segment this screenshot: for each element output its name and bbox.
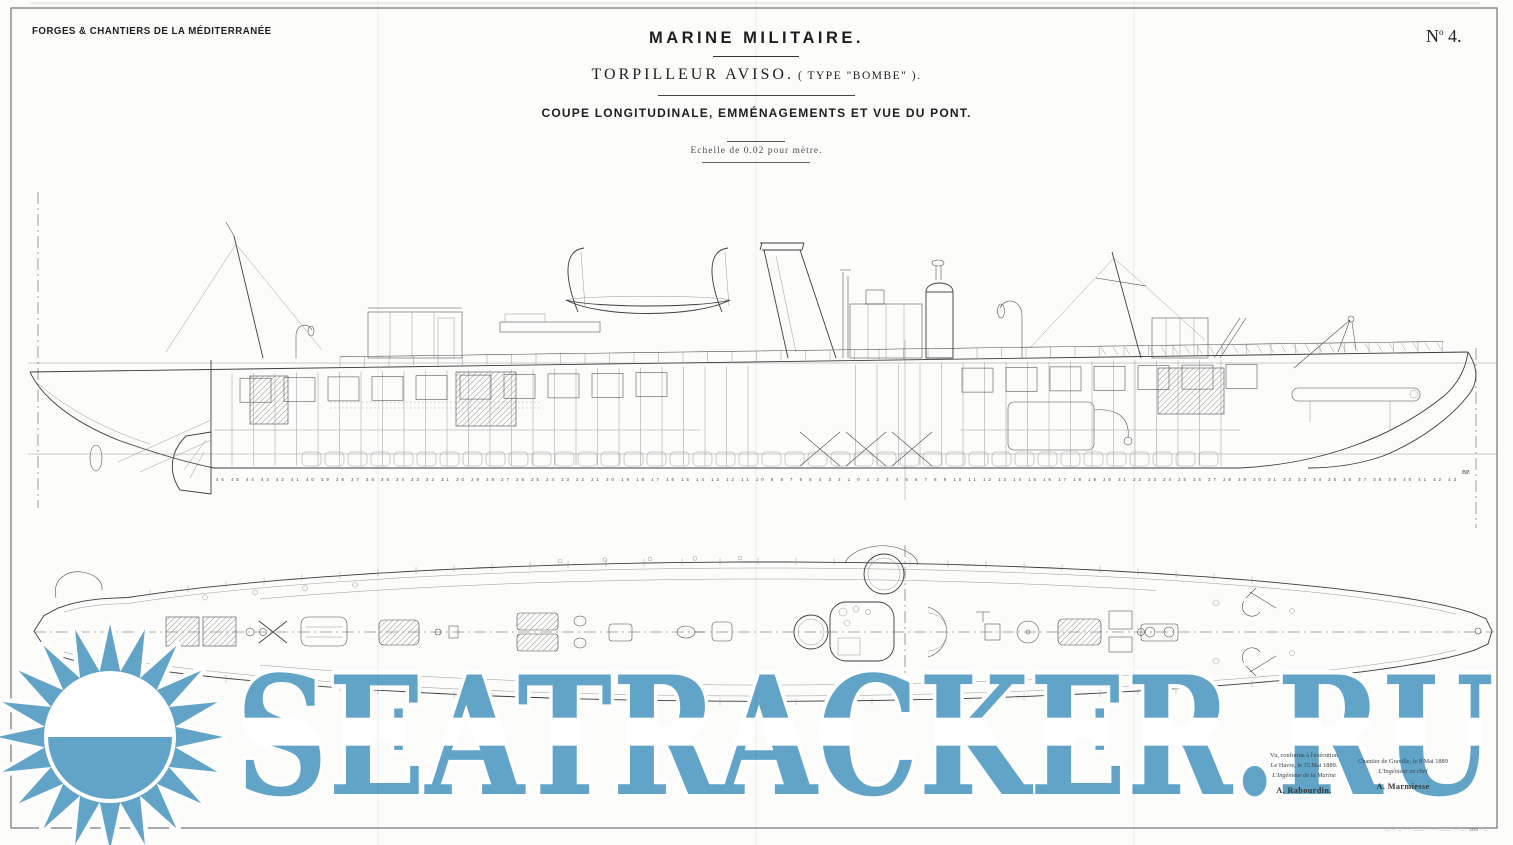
fold-mark (377, 0, 379, 845)
sponson-bulge (845, 546, 917, 565)
subtitle-type: ( TYPE "BOMBE" ). (798, 70, 922, 82)
skylight (500, 322, 600, 332)
frame-numbers: 46 45 44 43 42 41 40 39 38 37 36 35 34 3… (216, 477, 1457, 482)
approval-line: Chantier de Graville, le 8 Mai 1889 (1350, 757, 1456, 767)
signature-name: A. Marmiesse (1350, 780, 1456, 793)
interior-details (250, 368, 1224, 450)
ram-bow-line (1308, 352, 1476, 468)
anchor-crane (1294, 320, 1356, 368)
imprint-microtext: ·—· ··· — ···· · ——— ·· ····· ——— · ·· ·… (1384, 828, 1488, 832)
ladder (1214, 318, 1246, 358)
plate-prefix: N (1426, 26, 1439, 46)
generated-frames-and-rail (232, 341, 1443, 466)
conning-tower-dome (926, 283, 953, 292)
subtitle-main: TORPILLEUR AVISO. (592, 66, 794, 83)
fold-mark (755, 0, 757, 845)
fore-mast (1112, 252, 1141, 358)
signature-name: A. Rabourdin. (1248, 784, 1360, 797)
side-view-longitudinal-section: 46 45 44 43 42 41 40 39 38 37 36 35 34 3… (28, 192, 1497, 528)
approval-line: L'Ingénieur en chef (1350, 767, 1456, 777)
blueprint-sheet: 46 45 44 43 42 41 40 39 38 37 36 35 34 3… (0, 0, 1513, 845)
masts-and-rigging (166, 222, 1205, 358)
bow-torpedo-tube (1292, 388, 1420, 401)
plate-number: No 4. (1426, 26, 1462, 47)
vent-pipe-aft (296, 325, 312, 358)
approval-line: Le Havre, le 15 Mai 1889. (1248, 761, 1360, 771)
approval-line: L'Ingénieur de la Marine (1248, 771, 1360, 781)
plate-num: 4. (1448, 26, 1462, 46)
windlass (1141, 624, 1178, 641)
grating (203, 617, 236, 646)
watermark: SEATRACKER.RU (0, 624, 1494, 845)
gun-platform-circle (864, 554, 904, 594)
stern-overhang (55, 572, 102, 598)
aft-mast (234, 236, 263, 358)
hull-profile (30, 352, 1476, 494)
aft-deckhouse (368, 312, 462, 358)
boiler (1008, 402, 1094, 450)
ships-boat (566, 300, 730, 314)
grating (517, 613, 558, 630)
plate-sup: o (1439, 27, 1444, 37)
fold-mark (1133, 0, 1135, 845)
propeller (90, 445, 102, 471)
bow-tube-plan (1475, 628, 1481, 634)
watermark-text: SEATRACKER.RU (236, 640, 1494, 833)
anchor-port (1242, 588, 1276, 616)
grating (166, 617, 199, 646)
sun-icon (0, 624, 223, 845)
approval-note-right: Chantier de Graville, le 8 Mai 1889 L'In… (1350, 757, 1456, 793)
funnel (760, 243, 836, 358)
approval-note-left: Vu, conforme à l'exécution Le Havre, le … (1248, 751, 1360, 797)
approval-line: Vu, conforme à l'exécution (1248, 751, 1360, 761)
cowl-vent (1000, 301, 1022, 358)
bow-perpendicular-label: BP. (1462, 470, 1471, 476)
steam-pipe (840, 270, 851, 358)
